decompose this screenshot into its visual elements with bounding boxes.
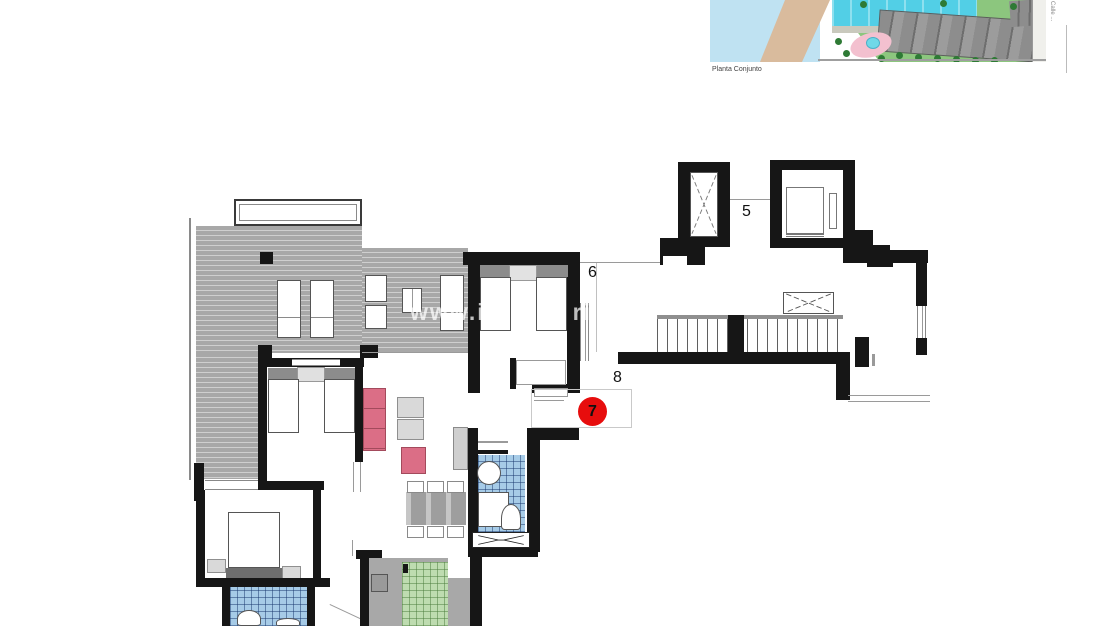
tree	[843, 50, 850, 57]
wall	[843, 230, 873, 250]
bed	[228, 512, 280, 568]
terrace-edge-line	[848, 401, 930, 402]
chimney	[855, 337, 869, 367]
watermark: www.iw ri	[410, 299, 592, 326]
tree	[896, 52, 903, 59]
wall	[618, 352, 848, 364]
bed	[324, 379, 355, 433]
elevator-door-line	[786, 233, 824, 234]
wall	[916, 263, 927, 306]
unit-label-6: 6	[588, 264, 597, 282]
terrace-edge-line	[848, 395, 930, 396]
column	[260, 252, 273, 264]
terrace-edge-line	[362, 352, 468, 353]
armchair-pink	[401, 447, 426, 474]
stairs-upper-flight	[657, 315, 843, 333]
hatch-x-icon	[784, 293, 833, 313]
terrace-table	[365, 275, 387, 302]
headboard	[226, 568, 282, 578]
bed	[268, 379, 299, 433]
wall	[843, 250, 928, 263]
dining-chair	[427, 526, 444, 538]
window	[205, 480, 259, 490]
tree	[1010, 3, 1017, 10]
unit-badge-7: 7	[578, 397, 607, 426]
closet-x-icon	[473, 533, 529, 547]
curb-line	[1066, 25, 1067, 73]
wall	[222, 587, 230, 626]
dining-chair	[427, 481, 444, 493]
closet	[472, 532, 530, 548]
wall	[189, 218, 191, 480]
armchair	[397, 397, 424, 418]
roof-hatch	[783, 292, 834, 314]
wall-opening	[663, 256, 687, 265]
road	[1032, 0, 1046, 62]
floor-plan-page: Planta Conjunto Calle ...	[0, 0, 1110, 626]
kitchen-fixture	[403, 564, 408, 573]
dining-chair	[447, 526, 464, 538]
nightstand	[207, 559, 226, 573]
site-boundary-line	[818, 59, 1046, 61]
door-frame	[352, 540, 353, 556]
wall	[360, 556, 369, 626]
wall	[307, 587, 315, 626]
unit-label-8: 8	[613, 369, 622, 387]
window	[917, 306, 926, 338]
wall	[836, 352, 850, 400]
door-frame	[353, 462, 354, 492]
sofa	[363, 388, 386, 451]
unit-label-5: 5	[742, 203, 751, 221]
dining-chair	[407, 526, 424, 538]
sun-lounger	[310, 280, 334, 338]
wall	[196, 490, 205, 580]
toilet	[501, 504, 521, 530]
tick	[872, 354, 875, 366]
tree	[835, 38, 842, 45]
jacuzzi	[866, 37, 880, 49]
stairs-lower-flight	[657, 333, 843, 352]
pillow	[509, 265, 537, 281]
wall	[258, 358, 267, 490]
sink	[477, 461, 501, 485]
kitchen-corner	[448, 558, 470, 578]
dining-chair	[447, 481, 464, 493]
armchair	[397, 419, 424, 440]
kitchen-appliance	[371, 574, 388, 592]
street-label: Calle ...	[1049, 1, 1055, 45]
elevator-shaft	[690, 172, 718, 237]
window	[292, 359, 340, 366]
shelf	[478, 441, 508, 443]
threshold	[478, 450, 508, 454]
elevator-car	[786, 187, 824, 235]
landing-line	[730, 199, 770, 200]
column	[258, 345, 272, 358]
pergola-inner	[239, 204, 357, 221]
wall	[468, 428, 478, 548]
counterweight	[829, 193, 837, 229]
stairs-divider	[728, 315, 744, 352]
terrace-table	[365, 305, 387, 329]
terrace-deck	[196, 353, 258, 479]
caption-planta-conjunto: Planta Conjunto	[712, 66, 762, 73]
wall	[916, 338, 927, 355]
wall	[196, 578, 330, 587]
dining-chair	[407, 481, 424, 493]
toilet	[276, 618, 300, 626]
tree	[860, 1, 867, 8]
kitchen-floor	[402, 562, 448, 626]
pillow	[297, 367, 325, 382]
elevator-door-line	[786, 236, 824, 237]
toilet	[237, 610, 261, 626]
wall	[313, 481, 321, 580]
wall	[527, 428, 579, 440]
tree	[940, 0, 947, 7]
door-frame	[360, 462, 361, 492]
shaft-x-icon	[691, 173, 717, 236]
cabinet	[453, 427, 468, 470]
pergola	[234, 199, 362, 226]
wall	[463, 252, 580, 265]
dining-table	[406, 492, 466, 525]
desk	[516, 360, 566, 385]
site-plan	[710, 0, 1046, 62]
wall	[355, 358, 363, 462]
wall	[470, 552, 482, 626]
sun-lounger	[277, 280, 301, 338]
